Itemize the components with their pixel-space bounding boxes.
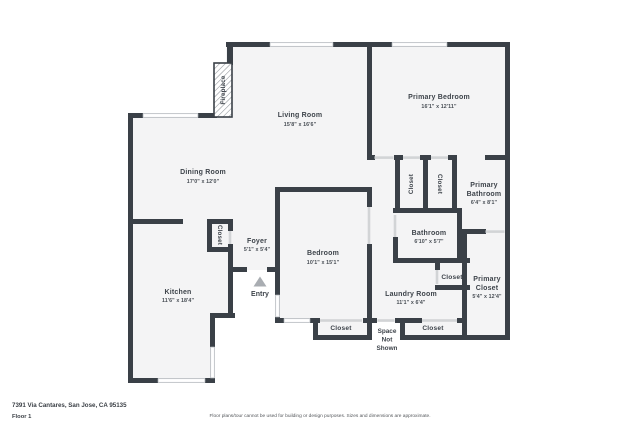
bedroom-label: Bedroom [307, 250, 339, 257]
kitchen-dims: 11'6" x 18'4" [162, 298, 195, 304]
sns-line-1: Space [378, 328, 397, 335]
footer: 7391 Via Cantares, San Jose, CA 95135 Fl… [12, 402, 431, 420]
closet-label-primary-2: Closet [436, 174, 443, 194]
primary-bathroom-label-1: Primary [470, 182, 497, 189]
entry-label: Entry [251, 291, 269, 298]
bedroom-dims: 10'1" x 15'1" [307, 260, 340, 266]
closet-label-foyer: Closet [216, 225, 223, 245]
foyer-label: Foyer [247, 238, 267, 245]
living-room-label: Living Room [278, 112, 323, 119]
bathroom-dims: 6'10" x 5'7" [414, 239, 444, 245]
dining-room-dims: 17'0" x 12'0" [187, 179, 220, 185]
floor-plan-page: Fireplace Entry Living Room 15'8" x 16'6… [0, 0, 640, 427]
sns-line-2: Not [382, 337, 394, 344]
laundry-room-label: Laundry Room [385, 291, 437, 298]
entry-arrow-icon [254, 277, 267, 287]
primary-closet-label-2: Closet [476, 285, 499, 292]
floor-plan-drawing: Fireplace Entry Living Room 15'8" x 16'6… [0, 0, 640, 427]
space-not-shown-label: Space Not Shown [377, 328, 398, 352]
laundry-room-dims: 11'1" x 6'4" [396, 300, 425, 306]
closet-label-primary-1: Closet [408, 174, 415, 194]
sns-line-3: Shown [377, 345, 398, 352]
dining-room-label: Dining Room [180, 169, 226, 176]
primary-bathroom-label-2: Bathroom [467, 191, 502, 198]
foyer-dims: 5'1" x 5'4" [244, 247, 271, 253]
fireplace-label: Fireplace [220, 75, 227, 104]
living-room-dims: 15'8" x 16'6" [284, 122, 317, 128]
closet-label-laundry-bottom: Closet [422, 325, 444, 332]
closet-label-laundry-small: Closet [441, 274, 463, 281]
primary-bathroom-dims: 6'4" x 8'1" [471, 200, 498, 206]
primary-closet-label-1: Primary [473, 276, 500, 283]
bathroom-label: Bathroom [412, 230, 447, 237]
kitchen-label: Kitchen [164, 289, 191, 296]
primary-bedroom-label: Primary Bedroom [408, 94, 470, 101]
disclaimer-text: Floor plans/tour cannot be used for buil… [209, 413, 430, 419]
address-text: 7391 Via Cantares, San Jose, CA 95135 [12, 402, 127, 409]
closet-label-bedroom: Closet [330, 325, 352, 332]
floor-number-text: Floor 1 [12, 414, 32, 420]
primary-bedroom-dims: 16'1" x 12'11" [421, 104, 457, 110]
primary-closet-dims: 5'4" x 12'4" [472, 294, 502, 300]
